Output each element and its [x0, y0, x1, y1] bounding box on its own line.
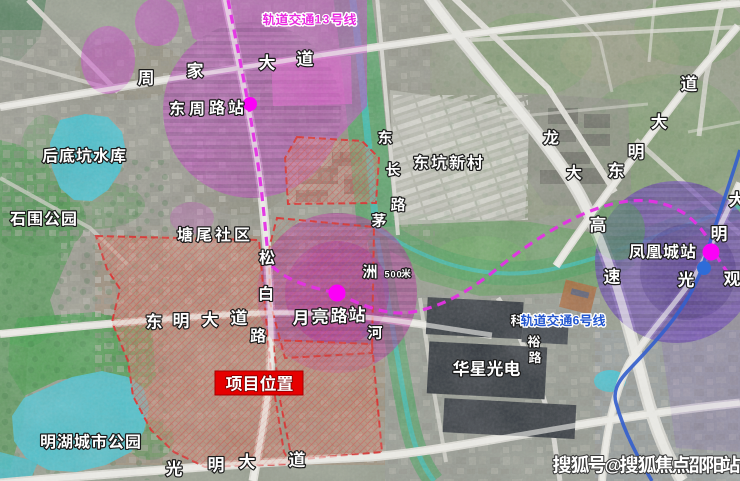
svg-text:@: @	[604, 455, 621, 475]
svg-text:5: 5	[384, 270, 389, 280]
svg-text:1: 1	[315, 13, 322, 27]
svg-text:0: 0	[390, 270, 395, 280]
svg-text:6: 6	[573, 314, 580, 328]
svg-text:3: 3	[323, 13, 330, 27]
svg-text:0: 0	[396, 270, 401, 280]
